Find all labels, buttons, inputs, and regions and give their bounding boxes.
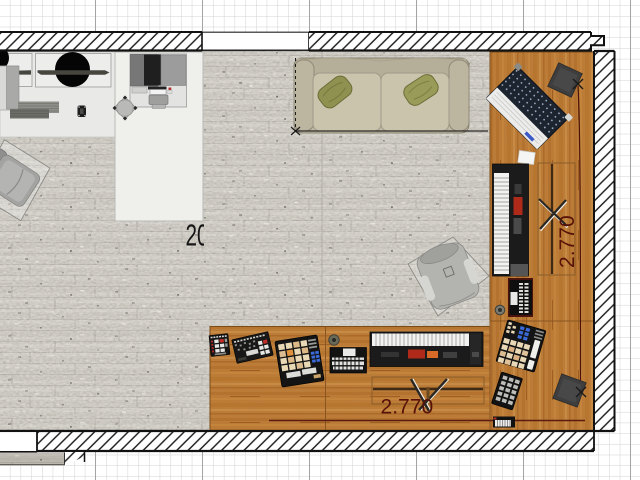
svg-text:2.770: 2.770	[555, 215, 579, 268]
svg-text:2.770: 2.770	[381, 394, 434, 418]
